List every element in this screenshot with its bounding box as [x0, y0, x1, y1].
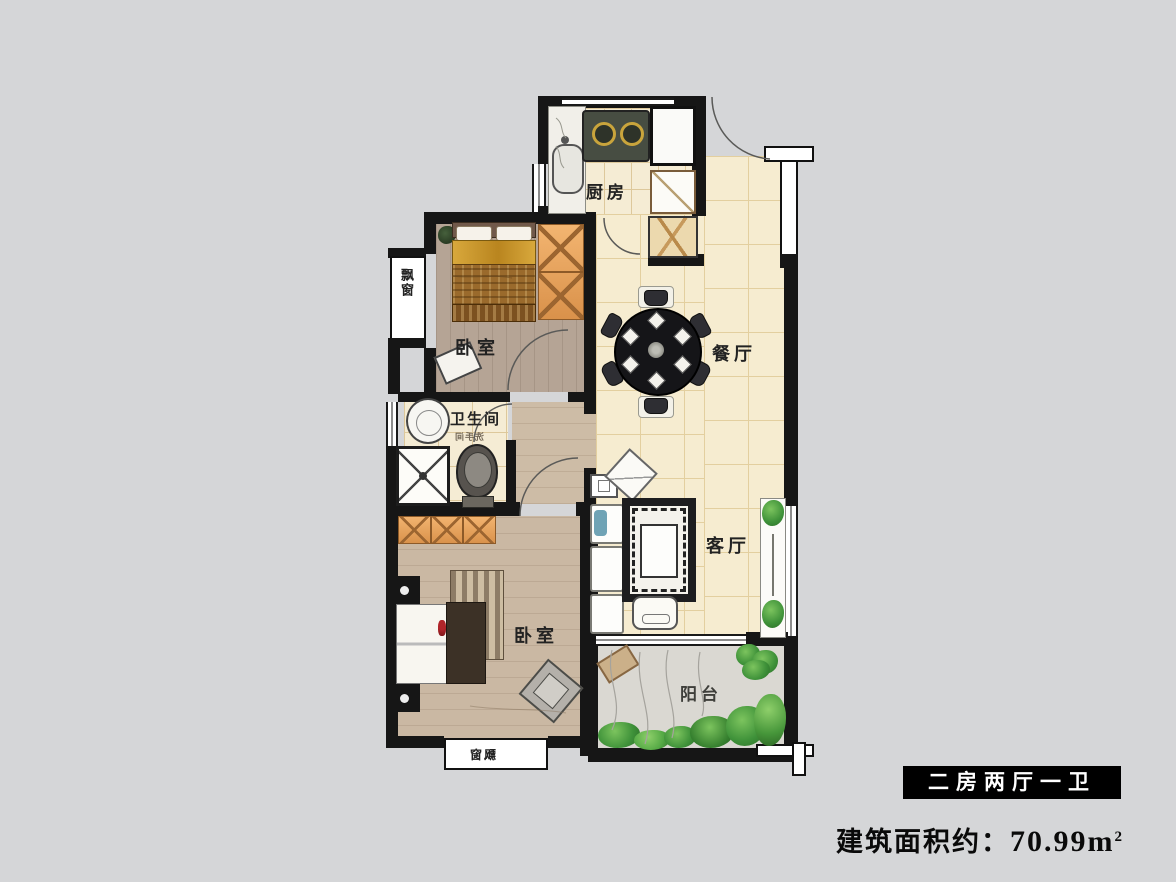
bathroom-wall-right-stub	[506, 440, 516, 508]
bay-window-left-label: 飘窗	[397, 268, 416, 298]
washbasin-bowl	[416, 410, 442, 436]
living-label: 客厅	[706, 532, 750, 558]
unit-type-badge: 二房两厅一卫	[903, 766, 1121, 799]
bathroom-sublabel: 洗手间	[454, 430, 484, 443]
window-seat-rail	[772, 534, 774, 596]
nightstand-top-lamp	[400, 586, 409, 595]
dining-centerpiece	[648, 342, 664, 358]
bedroom-top-wall-bottom-a	[398, 392, 510, 402]
shoe-cabinet	[648, 216, 698, 258]
kitchen-window-top	[562, 98, 674, 106]
bay-left-stub-bottom	[388, 338, 426, 348]
living-window-right	[784, 506, 798, 636]
balcony-label: 阳台	[680, 680, 722, 705]
sofa-section-3	[590, 594, 624, 634]
balcony-corner-window-stub	[792, 742, 806, 776]
hallway-wall-stub-top	[584, 392, 596, 414]
bedroom-bottom-wall-bottom-a	[386, 736, 444, 748]
dining-chair-bottom	[644, 398, 668, 414]
dining-chair-top	[644, 290, 668, 306]
bed-top-foot-band	[452, 304, 536, 322]
bedroom-top-wall-left-lower	[424, 348, 436, 394]
toilet-seat	[464, 452, 492, 488]
bedroom-top-label: 卧室	[455, 334, 499, 360]
area-unit: m	[1088, 825, 1115, 858]
entry-window-column	[780, 160, 798, 256]
bed-bottom-blanket	[446, 602, 486, 684]
bedroom-top-wardrobe	[538, 224, 584, 320]
bed-bottom-flower	[438, 620, 446, 636]
bathroom-label: 卫生间	[450, 408, 501, 429]
bathroom-window-left	[386, 402, 398, 446]
right-wall-upper	[784, 266, 798, 506]
toilet-tank	[462, 496, 494, 508]
balcony-sliding-door	[596, 634, 748, 646]
bedroom-bottom-wardrobe	[398, 516, 496, 544]
coffee-table	[640, 524, 678, 578]
dining-label: 餐厅	[712, 340, 756, 366]
area-line: 建筑面积约：70.99m2	[836, 820, 1124, 859]
area-value: 70.99	[1010, 825, 1088, 858]
nightstand-bottom-lamp	[400, 694, 409, 703]
stove-burner-left	[592, 122, 616, 146]
left-wall-bath-corner	[388, 348, 400, 394]
living-ottoman	[632, 596, 678, 630]
kitchen-sink	[552, 144, 584, 194]
living-side-table-mark	[598, 480, 610, 492]
area-prefix: 建筑面积约：	[836, 827, 1010, 857]
bedroom-bottom-label: 卧室	[514, 622, 558, 648]
sofa-cushion	[594, 510, 607, 536]
floorplan-page: { "page": { "background": "#d5d6d8" }, "…	[0, 0, 1176, 882]
area-exponent: 2	[1115, 829, 1125, 845]
fridge	[650, 106, 696, 166]
kitchen-window-left	[532, 164, 546, 212]
kitchen-pantry-cabinet	[650, 170, 696, 214]
right-wall-lower	[784, 636, 798, 756]
bed-top-blanket	[452, 264, 536, 306]
bedroom-top-wall-right	[584, 224, 596, 404]
stove-burner-right	[620, 122, 644, 146]
bed-top-gold-band	[452, 240, 536, 266]
bed-top-pillow-left	[456, 226, 492, 241]
bay-window-bottom-label: 飘窗	[468, 746, 496, 763]
kitchen-label: 厨房	[586, 178, 628, 203]
kitchen-faucet	[561, 136, 569, 144]
living-ottoman-line	[642, 614, 670, 624]
shower-drain	[419, 472, 427, 480]
bed-top-pillow-right	[496, 226, 532, 241]
sofa-section-2	[590, 546, 624, 592]
unit-type-badge-text: 二房两厅一卫	[928, 770, 1096, 794]
